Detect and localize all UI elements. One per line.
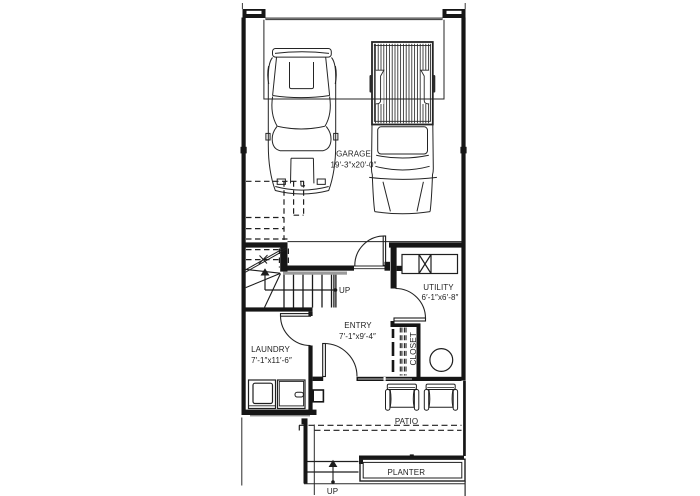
svg-text:LAUNDRY: LAUNDRY: [251, 345, 290, 354]
svg-text:19′-3″x20′-0″: 19′-3″x20′-0″: [331, 160, 377, 169]
svg-text:7′-1″x11′-6″: 7′-1″x11′-6″: [251, 356, 292, 365]
svg-text:7′-1″x9′-4″: 7′-1″x9′-4″: [339, 332, 376, 341]
svg-text:ENTRY: ENTRY: [344, 321, 372, 330]
svg-text:PLANTER: PLANTER: [387, 468, 425, 477]
svg-text:GARAGE: GARAGE: [336, 149, 371, 158]
svg-text:CLOSET: CLOSET: [409, 332, 418, 365]
svg-text:PATIO: PATIO: [395, 417, 418, 426]
svg-text:UP: UP: [339, 286, 350, 295]
svg-text:UTILITY: UTILITY: [423, 283, 454, 292]
svg-text:UP: UP: [327, 487, 338, 496]
svg-text:6′-1″x6′-8″: 6′-1″x6′-8″: [422, 293, 459, 302]
